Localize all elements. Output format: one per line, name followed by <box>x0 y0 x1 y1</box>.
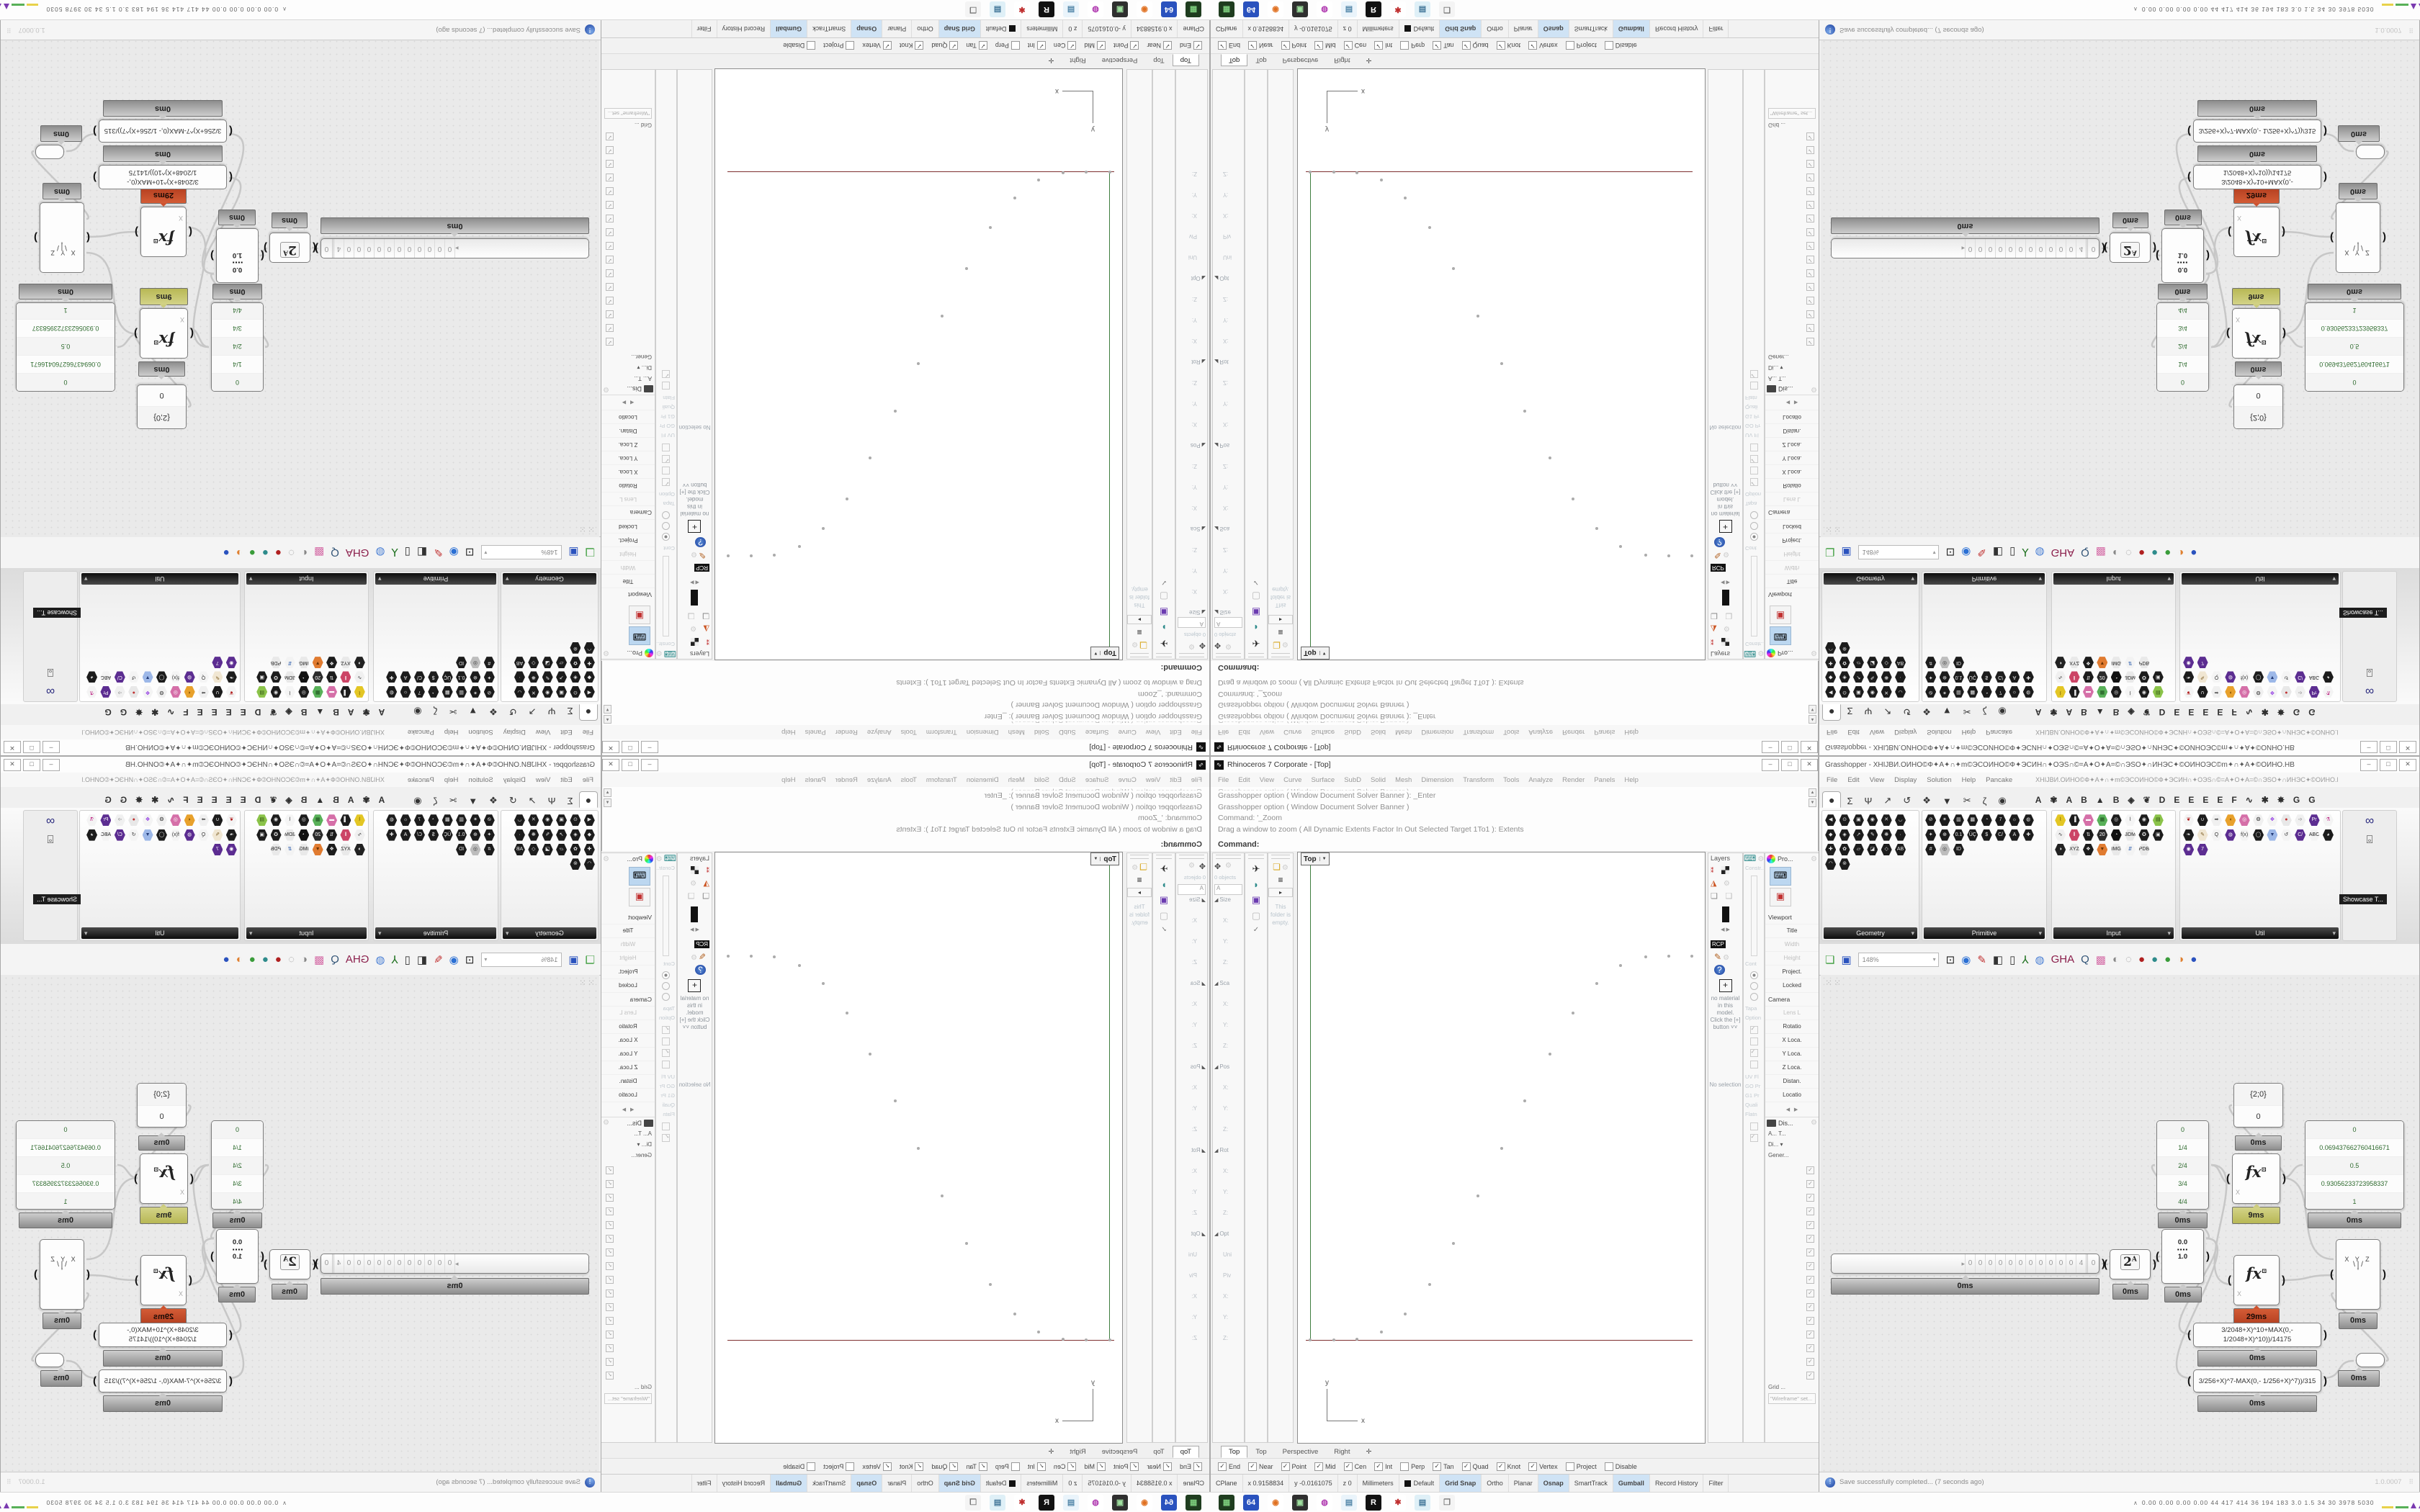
display-checkbox[interactable]: ✓ <box>1806 338 1814 346</box>
checkbox-box[interactable] <box>1528 41 1537 50</box>
checkbox-box[interactable] <box>1400 41 1409 50</box>
gh-category-tab[interactable]: ❖ <box>483 793 503 808</box>
component-icon[interactable]: f(x) <box>170 829 181 841</box>
gh-toolbar-icon[interactable]: ◍ <box>375 953 385 966</box>
component-icon[interactable]: 3DM <box>284 671 295 683</box>
gh-toolbar-icon[interactable]: ● <box>262 546 269 559</box>
rhino-menu-item[interactable]: Analyze <box>1528 776 1553 784</box>
component-icon[interactable]: ◪ <box>1867 844 1878 855</box>
checkbox-box[interactable] <box>1528 1462 1537 1471</box>
status-field[interactable]: SmartTrack <box>807 20 851 37</box>
gh-toolbar-icon[interactable]: ● <box>2190 953 2197 966</box>
osnap-checkbox[interactable]: Int <box>1028 1462 1046 1471</box>
component-icon[interactable]: ⌇ <box>2125 814 2136 826</box>
gh-toolbar-icon[interactable]: ▩ <box>314 546 324 559</box>
component-icon[interactable]: ◇ <box>1881 657 1892 668</box>
component-icon[interactable]: ∪ <box>212 686 223 698</box>
rhino-menu-item[interactable]: View <box>1146 776 1160 784</box>
power-node[interactable]: ( 2A ) <box>269 1249 310 1279</box>
rhino-command-history[interactable]: Grasshopper option ( Window Document Sol… <box>1211 673 1818 725</box>
status-field[interactable]: y -0.0161075 <box>1289 20 1338 37</box>
component-icon[interactable]: ● <box>2281 814 2292 826</box>
component-icon[interactable]: ◍ <box>2225 829 2236 841</box>
viewport-tab[interactable]: Right <box>1062 1446 1094 1458</box>
rhino-menu-item[interactable]: Transform <box>926 776 957 784</box>
copy-layer-icon[interactable]: ❏ <box>688 611 695 621</box>
new-layer-icon[interactable]: ❏ <box>1711 611 1718 621</box>
status-field[interactable]: CPlane <box>1211 20 1243 37</box>
gh-toolbar-icon[interactable]: ▯ <box>2009 953 2015 966</box>
component-icon[interactable]: ◆ <box>584 671 595 683</box>
viewport-tab[interactable]: ✛ <box>1041 54 1062 66</box>
component-icon[interactable]: ❧ <box>2183 671 2194 683</box>
rhino-viewport[interactable]: Top▼ y x <box>1297 852 1706 1444</box>
colorwheel-icon[interactable]: ◮ <box>704 624 709 634</box>
gh-plugin-tab[interactable]: E <box>2198 793 2213 808</box>
display-checkbox[interactable]: ✓ <box>606 1180 614 1188</box>
component-icon[interactable]: 20 <box>2097 829 2107 841</box>
gh-plugin-tab[interactable]: ✸ <box>131 704 147 719</box>
osnap-checkbox[interactable]: Quad <box>1462 1462 1489 1471</box>
osnap-checkbox[interactable]: Near <box>1248 1462 1273 1471</box>
rhino-menu-item[interactable]: Curve <box>1119 729 1137 737</box>
component-icon[interactable]: ✦ <box>484 829 495 841</box>
gear-icon[interactable]: ⚙ <box>1225 862 1232 871</box>
rhino-menu-item[interactable]: Dimension <box>967 729 999 737</box>
rhino-menu-item[interactable]: Analyze <box>867 729 892 737</box>
gh-plugin-tab[interactable]: ✱ <box>147 793 163 808</box>
display-checkbox[interactable]: ✓ <box>1806 1276 1814 1284</box>
group-label[interactable]: Input <box>2053 927 2174 939</box>
gh-menu-item[interactable]: File <box>1827 776 1837 784</box>
component-icon[interactable]: A <box>2009 829 2020 841</box>
gh-plugin-tab[interactable]: E <box>193 704 207 719</box>
close-button[interactable]: ✕ <box>4 759 21 771</box>
gh-plugin-tab[interactable]: ∿ <box>2241 793 2257 808</box>
osnap-checkbox[interactable]: Perp <box>1400 41 1425 50</box>
camera-properties-button[interactable]: ⌨ <box>629 867 650 886</box>
display-checkbox[interactable]: ✓ <box>606 1207 614 1215</box>
component-icon[interactable]: ↗ <box>556 829 567 841</box>
viewport-tab[interactable]: Perspective <box>1275 1446 1327 1458</box>
status-field[interactable]: SmartTrack <box>1569 20 1613 37</box>
component-icon[interactable]: PDB <box>271 657 282 668</box>
component-icon[interactable]: ID <box>1953 844 1964 855</box>
component-icon[interactable]: ❂ <box>2253 814 2264 826</box>
component-icon[interactable]: ∿ <box>2055 829 2066 841</box>
checkbox[interactable] <box>1750 467 1758 474</box>
viewport-tab[interactable]: Top <box>1247 54 1274 66</box>
minimize-button[interactable]: – <box>1762 742 1779 754</box>
gh-toolbar-icon[interactable]: ● <box>223 953 230 966</box>
digit-cell[interactable]: 0 <box>2025 239 2035 258</box>
panel-nav-arrows[interactable]: ◀ ▶ <box>1765 1107 1819 1112</box>
relay-node[interactable] <box>2356 1353 2385 1367</box>
hamburger-icon[interactable]: ≡ <box>1268 875 1293 885</box>
status-field[interactable]: z 0 <box>1338 20 1358 37</box>
command-scrollbar[interactable]: ▲▼ <box>604 788 611 837</box>
digit-cell[interactable]: 0 <box>405 239 415 258</box>
checkbox-box[interactable] <box>1011 1462 1020 1471</box>
expand-icon[interactable]: ▸ <box>1127 615 1152 624</box>
command-prompt[interactable]: Command: <box>1211 661 1818 674</box>
digit-cell[interactable]: 0 <box>1995 239 2005 258</box>
digit-cell[interactable]: 4 <box>2076 1254 2086 1273</box>
layer-state-icon[interactable]: ⁑ <box>707 637 710 645</box>
wireframe-settings[interactable]: "Wireframe" set... <box>1768 108 1816 119</box>
component-icon[interactable]: ⚗ <box>86 814 97 826</box>
checkbox-box[interactable] <box>883 41 892 50</box>
component-icon[interactable]: ◔ <box>1981 814 1992 826</box>
expand-icon[interactable]: ▸ <box>1127 888 1152 897</box>
property-row[interactable]: Z Loca. <box>601 1061 655 1075</box>
expression-node-a[interactable]: ( fx⊡ X ) <box>2233 1255 2280 1305</box>
digit-cell[interactable]: 0 <box>445 1254 455 1273</box>
checkbox[interactable] <box>663 467 671 474</box>
component-icon[interactable]: ☼ <box>2009 814 2020 826</box>
status-field[interactable]: y -0.0161075 <box>1082 1475 1131 1492</box>
component-icon[interactable]: ◈ <box>570 829 581 841</box>
component-icon[interactable]: ◉ <box>226 657 237 668</box>
gh-category-tab[interactable]: ◉ <box>408 704 427 719</box>
gh-category-tab[interactable]: ζ <box>1977 793 1993 808</box>
osnap-checkbox[interactable]: Cen <box>1344 1462 1367 1471</box>
panel-nav-arrows[interactable]: ◀ ▶ <box>601 400 655 405</box>
osnap-checkbox[interactable]: Point <box>1281 41 1307 50</box>
component-icon[interactable]: 0.1 <box>1953 671 1964 683</box>
boxedit-input[interactable]: A <box>1178 617 1206 628</box>
osnap-checkbox[interactable]: Point <box>1281 1462 1307 1471</box>
component-icon[interactable]: ❂ <box>2253 686 2264 698</box>
chevron-down-icon[interactable]: ▼ <box>1319 857 1327 861</box>
values-panel[interactable]: ( 00.0694376627604166710.50.930562337239… <box>16 302 115 392</box>
status-field[interactable]: Filter <box>691 20 717 37</box>
gh-plugin-tab[interactable]: G <box>116 793 131 808</box>
group-label[interactable]: Util <box>2182 573 2339 585</box>
values-panel[interactable]: ( 00.0694376627604166710.50.930562337239… <box>2305 1120 2404 1210</box>
taskbar-app-icon[interactable]: R <box>1039 1495 1054 1511</box>
display-checkbox[interactable]: ✓ <box>606 338 614 346</box>
component-icon[interactable]: ◔ <box>2111 671 2122 683</box>
gh-category-tab[interactable]: ↗ <box>523 793 542 808</box>
layer-color-swatch[interactable] <box>691 906 699 922</box>
maximize-button[interactable]: □ <box>1781 759 1798 771</box>
component-icon[interactable]: ABC <box>100 671 111 683</box>
radio-selected[interactable] <box>663 533 671 541</box>
component-icon[interactable]: ⊕ <box>1940 829 1950 841</box>
component-icon[interactable]: ↺ <box>2281 829 2292 841</box>
checkbox-box[interactable] <box>1248 41 1257 50</box>
monitor-tool-icon[interactable]: ▣ <box>1153 606 1175 618</box>
property-row[interactable]: Y Loca. <box>1765 451 1819 464</box>
osnap-checkbox[interactable]: Cen <box>1344 41 1367 50</box>
minimize-button[interactable]: – <box>42 742 60 754</box>
component-icon[interactable]: ▬ <box>2083 686 2094 698</box>
relay-node[interactable] <box>2356 145 2385 159</box>
component-icon[interactable]: 7 <box>212 844 223 855</box>
panel-grip[interactable] <box>1216 855 1241 859</box>
gh-plugin-tab[interactable]: E <box>236 704 251 719</box>
gh-toolbar-icon[interactable]: ◐ <box>301 953 308 966</box>
gh-plugin-tab[interactable]: D <box>2155 704 2170 719</box>
digit-cell[interactable]: 0 <box>344 239 354 258</box>
osnap-checkbox[interactable]: Near <box>1147 41 1172 50</box>
gh-plugin-tab[interactable]: F <box>2227 793 2241 808</box>
group-label[interactable]: Geometry <box>1824 573 1917 585</box>
gh-plugin-tab[interactable]: B <box>328 704 344 719</box>
checkbox[interactable] <box>663 1026 671 1034</box>
domain-node[interactable]: ( 0.0 ▪▪▪▪ 1.0 ) <box>2161 228 2204 283</box>
monitor-tool-icon[interactable]: ▣ <box>1245 606 1267 618</box>
expression-node-b[interactable]: ( fx⊡ X ) <box>140 308 188 359</box>
checkbox-box[interactable] <box>1400 1462 1409 1471</box>
values-panel[interactable]: ( 00.0694376627604166710.50.930562337239… <box>16 1120 115 1210</box>
viewport-tab[interactable]: Top <box>1247 1446 1274 1458</box>
component-icon[interactable]: ▬ <box>2083 814 2094 826</box>
display-mode[interactable]: Di... ▾ <box>601 1139 655 1150</box>
gh-plugin-tab[interactable]: E <box>2184 793 2198 808</box>
gh-toolbar-icon[interactable]: ⅄ <box>391 953 398 966</box>
gh-plugin-tab[interactable]: G <box>2304 793 2319 808</box>
expand-icon[interactable]: ▸ <box>1268 615 1293 624</box>
status-field[interactable]: SmartTrack <box>1569 1475 1613 1492</box>
camera-properties-button[interactable]: ⌨ <box>629 626 650 645</box>
component-icon[interactable]: f(x) <box>2239 829 2250 841</box>
rhino-titlebar[interactable]: ∿ Rhinoceros 7 Corporate - [Top] – □ ✕ <box>1211 739 1818 755</box>
component-icon[interactable]: ◍ <box>2225 671 2236 683</box>
property-row[interactable]: Width <box>601 560 655 574</box>
display-checkbox[interactable]: ✓ <box>1806 324 1814 332</box>
gh-toolbar-icon[interactable]: ⅄ <box>391 546 398 559</box>
display-checkbox[interactable]: ✓ <box>1806 297 1814 305</box>
component-icon[interactable]: C/ <box>115 671 125 683</box>
property-row[interactable]: Distan. <box>1765 1075 1819 1089</box>
component-icon[interactable]: ✚ <box>1825 844 1836 855</box>
layer-color-swatch[interactable] <box>1722 906 1729 922</box>
component-icon[interactable]: ✎ <box>2197 829 2208 841</box>
display-checkbox[interactable]: ✓ <box>606 256 614 264</box>
checker-icon[interactable] <box>1721 866 1729 874</box>
component-icon[interactable]: ◪ <box>1867 657 1878 668</box>
component-icon[interactable]: ❂ <box>156 686 167 698</box>
expression-string-panel-1[interactable]: ( 3/2048+X)^10+MAX(0,- 1/2048+X)^10))/14… <box>99 165 227 189</box>
component-icon[interactable]: ⊙ <box>1839 814 1850 826</box>
gh-plugin-tab[interactable]: ✱ <box>2257 793 2273 808</box>
component-icon[interactable]: 20 <box>313 829 323 841</box>
component-icon[interactable]: ◇ <box>1881 844 1892 855</box>
slider-track[interactable] <box>663 876 670 956</box>
gh-toolbar-icon[interactable]: ● <box>2138 546 2145 559</box>
gh-menu-item[interactable]: Pancake <box>1986 729 2012 737</box>
gh-plugin-tab[interactable]: ◈ <box>281 704 296 719</box>
gh-toolbar-icon[interactable]: ◌ <box>2125 546 2132 559</box>
gh-category-tab[interactable]: ζ <box>428 704 444 719</box>
digit-cell[interactable]: 0 <box>425 239 435 258</box>
zoom-level-combo[interactable]: 148% <box>481 546 562 560</box>
osnap-checkbox[interactable]: Point <box>1113 41 1139 50</box>
group-label[interactable]: Util <box>81 927 238 939</box>
new-layer-icon[interactable]: ❏ <box>1711 891 1718 901</box>
gh-toolbar-icon[interactable]: ◍ <box>375 546 385 559</box>
status-field[interactable]: Osnap <box>851 1475 882 1492</box>
component-icon[interactable]: ◑ <box>2055 844 2066 855</box>
checkbox-box[interactable] <box>1163 1462 1172 1471</box>
gh-plugin-tab[interactable]: E <box>2169 793 2184 808</box>
taskbar-app-icon[interactable]: ▣ <box>1112 1495 1128 1511</box>
help-icon[interactable]: ? <box>695 537 706 547</box>
component-icon[interactable]: ▤ <box>2153 686 2164 698</box>
component-icon[interactable]: ▱ <box>1853 844 1864 855</box>
checkbox-box[interactable] <box>846 41 854 50</box>
fractions-panel[interactable]: ( 01/42/43/44/4 ) <box>211 1120 264 1210</box>
slider-track[interactable] <box>663 556 670 636</box>
component-icon[interactable]: ✎ <box>2197 671 2208 683</box>
rcp-badge[interactable]: RCP <box>694 564 709 572</box>
open-file-icon[interactable]: ❏ <box>586 953 595 966</box>
checkbox[interactable] <box>1750 455 1758 463</box>
property-row[interactable]: Locatio <box>1765 1089 1819 1102</box>
component-icon[interactable]: ▥ <box>456 814 467 826</box>
layer-state-icon[interactable]: ⁑ <box>707 867 710 875</box>
checkbox-box[interactable] <box>807 1462 815 1471</box>
relay-node[interactable] <box>35 145 64 159</box>
camera-tool-icon[interactable]: ⌨⚙ <box>656 649 676 659</box>
display-checkbox[interactable]: ✓ <box>1806 242 1814 250</box>
property-row[interactable]: Camera <box>601 505 655 519</box>
property-row[interactable]: Height <box>601 952 655 966</box>
component-icon[interactable]: ◉ <box>542 814 553 826</box>
component-icon[interactable]: C/ <box>414 671 425 683</box>
checkbox[interactable] <box>663 1049 671 1057</box>
component-icon[interactable]: ⇅ <box>2083 671 2094 683</box>
radio-selected[interactable] <box>1750 971 1758 979</box>
viewport-tab[interactable]: Right <box>1062 54 1094 66</box>
fractions-panel[interactable]: ( 01/42/43/44/4 ) <box>2156 1120 2209 1210</box>
taskbar-app-icon[interactable]: ✱ <box>1390 1 1406 17</box>
resize-grip[interactable]: ⠿ <box>2408 26 2414 34</box>
viewport-properties-button[interactable]: ▣ <box>1770 888 1791 906</box>
display-checkbox[interactable]: ✓ <box>1806 1303 1814 1311</box>
group-label[interactable]: Primitive <box>375 927 496 939</box>
component-icon[interactable]: ▣ <box>256 829 267 841</box>
close-button[interactable]: ✕ <box>2399 742 2416 754</box>
taskbar-app-icon[interactable]: ▤ <box>1063 1 1079 17</box>
component-icon[interactable]: C/ <box>115 829 125 841</box>
component-icon[interactable]: PDB <box>271 844 282 855</box>
checker-icon[interactable] <box>1721 638 1729 646</box>
rhino-menu-item[interactable]: View <box>1260 776 1274 784</box>
property-row[interactable]: Locked <box>601 979 655 993</box>
monitor-tool-icon[interactable]: ▣ <box>1153 894 1175 906</box>
gear-icon[interactable]: ⚙ <box>1225 641 1232 650</box>
rhino-menu-item[interactable]: View <box>1260 729 1274 737</box>
checkbox-box[interactable] <box>1130 41 1139 50</box>
component-icon[interactable]: 7 <box>2197 844 2208 855</box>
gh-toolbar-icon[interactable]: ▩ <box>2096 953 2106 966</box>
rhino-menu-item[interactable]: Mesh <box>1008 729 1025 737</box>
status-field[interactable]: Default <box>1399 20 1440 37</box>
zoom-level-combo[interactable]: 148% <box>1858 546 1939 560</box>
camera-tool-icon[interactable]: ⌨⚙ <box>656 853 676 863</box>
viewport-tab[interactable]: Right <box>1326 1446 1358 1458</box>
component-icon[interactable]: f(x) <box>2239 671 2250 683</box>
maximize-button[interactable]: □ <box>23 759 40 771</box>
status-field[interactable]: z 0 <box>1062 20 1082 37</box>
gh-category-tab[interactable]: ◉ <box>1992 793 2012 808</box>
rhino-menu-item[interactable]: Mesh <box>1395 776 1412 784</box>
checkbox-box[interactable] <box>1193 1462 1202 1471</box>
gh-toolbar-icon[interactable]: ◧ <box>417 546 427 559</box>
status-field[interactable]: Filter <box>691 1475 717 1492</box>
component-icon[interactable]: ✥ <box>143 686 153 698</box>
component-icon[interactable]: ◍ <box>2023 686 2034 698</box>
property-row[interactable]: Distan. <box>601 423 655 437</box>
digit-cell[interactable]: 0 <box>2056 239 2066 258</box>
checkbox[interactable] <box>1750 444 1758 451</box>
checkbox-box[interactable] <box>1497 41 1505 50</box>
folder-icon[interactable]: ❏⚙ <box>1268 640 1293 650</box>
gear-icon[interactable]: ⚙ <box>1811 855 1817 863</box>
property-row[interactable]: Rotatio <box>601 478 655 492</box>
panel-nav-arrows[interactable]: ◀ ▶ <box>678 580 712 585</box>
osnap-checkbox[interactable]: End <box>1180 1462 1202 1471</box>
component-icon[interactable]: ✚ <box>2023 829 2034 841</box>
command-prompt[interactable]: Command: <box>602 661 1209 674</box>
gh-toolbar-icon[interactable]: ▯ <box>405 546 411 559</box>
gh-plugin-tab[interactable]: F <box>179 704 192 719</box>
checkbox-box[interactable] <box>1566 1462 1574 1471</box>
status-field[interactable]: Millimeters <box>1358 1475 1399 1492</box>
checkbox-box[interactable] <box>1462 41 1471 50</box>
add-material-button[interactable]: + <box>689 979 702 992</box>
gh-toolbar-icon[interactable]: GHA <box>2051 546 2075 559</box>
digit-cell[interactable]: 0 <box>385 1254 395 1273</box>
grasshopper-titlebar[interactable]: Grasshopper - XHIJBИ.OИHO©Ф✦A✦∩✦m©ЭCOИHO… <box>1819 757 2419 773</box>
component-icon[interactable]: ➩ <box>2295 686 2305 698</box>
status-field[interactable]: Default <box>980 20 1021 37</box>
digit-cell[interactable]: 0 <box>1975 239 1985 258</box>
gh-plugin-tab[interactable]: ◈ <box>2123 704 2138 719</box>
rhino-menu-item[interactable]: File <box>1218 729 1229 737</box>
component-icon[interactable]: ▼ <box>2097 657 2107 668</box>
gh-menu-item[interactable]: Display <box>1894 776 1917 784</box>
display-checkbox[interactable]: ✓ <box>1806 310 1814 318</box>
display-checkbox[interactable]: ✓ <box>1806 1166 1814 1174</box>
new-layer-icon[interactable]: ❏ <box>702 891 709 901</box>
property-row[interactable]: Locatio <box>601 410 655 423</box>
component-icon[interactable]: ❦ <box>226 686 237 698</box>
gh-plugin-tab[interactable]: G <box>2304 704 2319 719</box>
gh-plugin-tab[interactable]: ◈ <box>2123 793 2138 808</box>
taskbar-app-icon[interactable]: ▦ <box>1186 1495 1201 1511</box>
component-icon[interactable]: ◇ <box>528 844 539 855</box>
osnap-checkbox[interactable]: Cen <box>1054 41 1077 50</box>
checker-icon[interactable] <box>691 866 699 874</box>
rhino-titlebar[interactable]: ∿ Rhinoceros 7 Corporate - [Top] – □ ✕ <box>1211 757 1818 773</box>
layer-state-icon[interactable]: ⁑ <box>1711 637 1714 645</box>
easel-icon[interactable]: ⌻ <box>2343 666 2396 684</box>
component-icon[interactable]: ▦ <box>313 686 323 698</box>
component-icon[interactable]: ▦ <box>313 814 323 826</box>
group-label[interactable]: Primitive <box>1924 573 2045 585</box>
gh-category-tab[interactable]: ↗ <box>523 704 542 719</box>
digit-cell[interactable]: 0 <box>2015 1254 2025 1273</box>
component-icon[interactable]: ◎ <box>470 657 480 668</box>
fractions-panel[interactable]: ( 01/42/43/44/4 ) <box>211 302 264 392</box>
panel-grip[interactable] <box>1156 653 1172 657</box>
component-icon[interactable]: ⚗ <box>2323 686 2334 698</box>
component-icon[interactable]: ⊘ <box>484 814 495 826</box>
